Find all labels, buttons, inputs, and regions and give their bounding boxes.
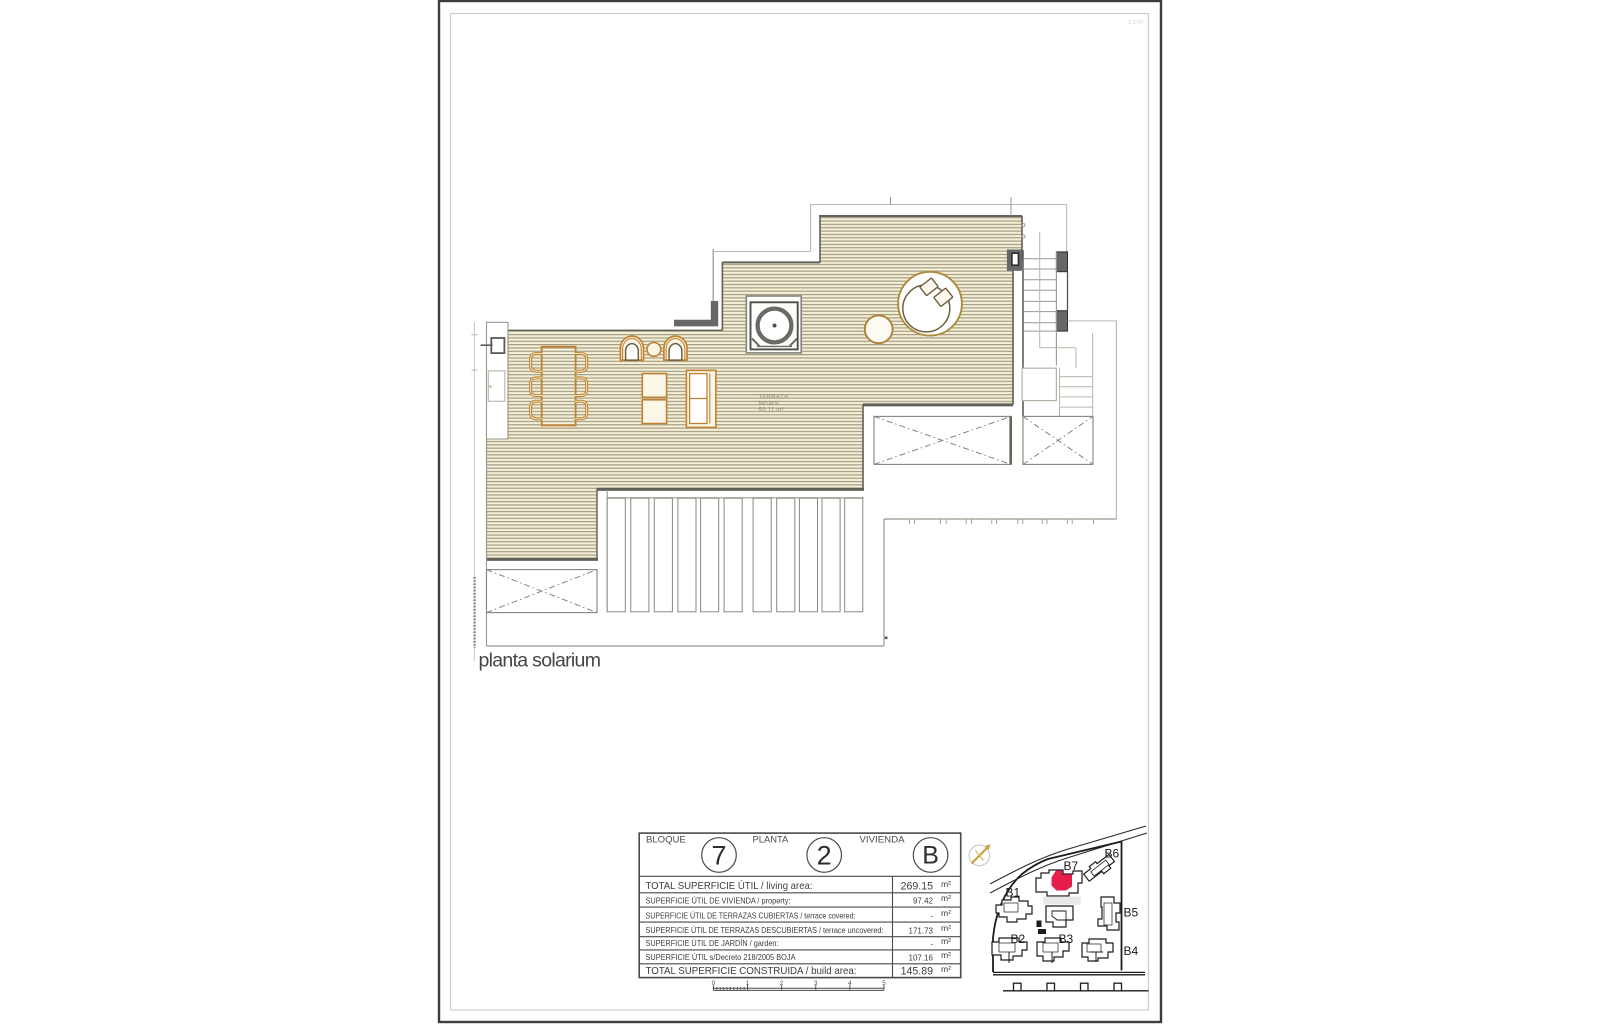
svg-text:5: 5	[882, 980, 886, 987]
svg-text:m²: m²	[941, 936, 951, 946]
svg-text:B2: B2	[1011, 932, 1026, 946]
svg-text:145.89: 145.89	[901, 966, 934, 978]
svg-text:TOTAL SUPERFICIE ÚTIL / living: TOTAL SUPERFICIE ÚTIL / living area:	[646, 879, 813, 892]
svg-text:-: -	[930, 912, 933, 921]
svg-text:7: 7	[711, 841, 726, 871]
svg-text:m²: m²	[941, 908, 951, 918]
svg-text:VIVIENDA: VIVIENDA	[860, 835, 905, 845]
svg-text:B4: B4	[1124, 944, 1139, 958]
svg-text:2: 2	[780, 980, 784, 987]
svg-text:SUPERFICIE ÚTIL DE TERRAZAS CU: SUPERFICIE ÚTIL DE TERRAZAS CUBIERTAS / …	[646, 911, 856, 920]
svg-text:269.15: 269.15	[901, 880, 934, 892]
svg-text:1: 1	[746, 980, 750, 987]
svg-text:171.73: 171.73	[909, 926, 934, 935]
svg-text:m²: m²	[941, 964, 951, 974]
svg-text:93.11 m²: 93.11 m²	[759, 407, 784, 414]
svg-text:SUPERFICIE ÚTIL DE VIVIENDA /: SUPERFICIE ÚTIL DE VIVIENDA / property:	[646, 896, 791, 905]
svg-text:B: B	[922, 842, 939, 870]
svg-text:1:100: 1:100	[1128, 20, 1144, 26]
svg-text:SUPERFICIE ÚTIL DE TERRAZAS DE: SUPERFICIE ÚTIL DE TERRAZAS DESCUBIERTAS…	[646, 926, 884, 935]
svg-text:BLOQUE: BLOQUE	[646, 835, 686, 845]
svg-text:-: -	[930, 940, 933, 949]
svg-text:0: 0	[712, 980, 716, 987]
svg-text:3: 3	[814, 980, 818, 987]
svg-text:m²: m²	[941, 923, 951, 933]
svg-text:TOTAL SUPERFICIE CONSTRUIDA /: TOTAL SUPERFICIE CONSTRUIDA / build area…	[646, 966, 857, 977]
svg-text:PLANTA: PLANTA	[753, 835, 789, 845]
svg-text:SUPERFICIE ÚTIL s/Decreto 218/: SUPERFICIE ÚTIL s/Decreto 218/2005 BOJA	[646, 953, 797, 962]
svg-text:97.42: 97.42	[913, 897, 934, 906]
svg-text:2: 2	[817, 841, 832, 871]
svg-text:m²: m²	[941, 950, 951, 960]
svg-text:m²: m²	[941, 893, 951, 903]
svg-text:B3: B3	[1059, 932, 1074, 946]
svg-text:4: 4	[848, 980, 852, 987]
svg-text:m²: m²	[941, 879, 951, 889]
svg-text:107.16: 107.16	[909, 953, 934, 962]
svg-text:SUPERFICIE ÚTIL DE JARDÍN / ga: SUPERFICIE ÚTIL DE JARDÍN / garden:	[646, 939, 779, 948]
svg-text:planta solarium: planta solarium	[479, 650, 601, 672]
svg-text:B5: B5	[1124, 906, 1139, 920]
svg-text:B7: B7	[1064, 859, 1079, 873]
svg-text:B6: B6	[1105, 847, 1120, 861]
svg-text:B1: B1	[1006, 886, 1021, 900]
